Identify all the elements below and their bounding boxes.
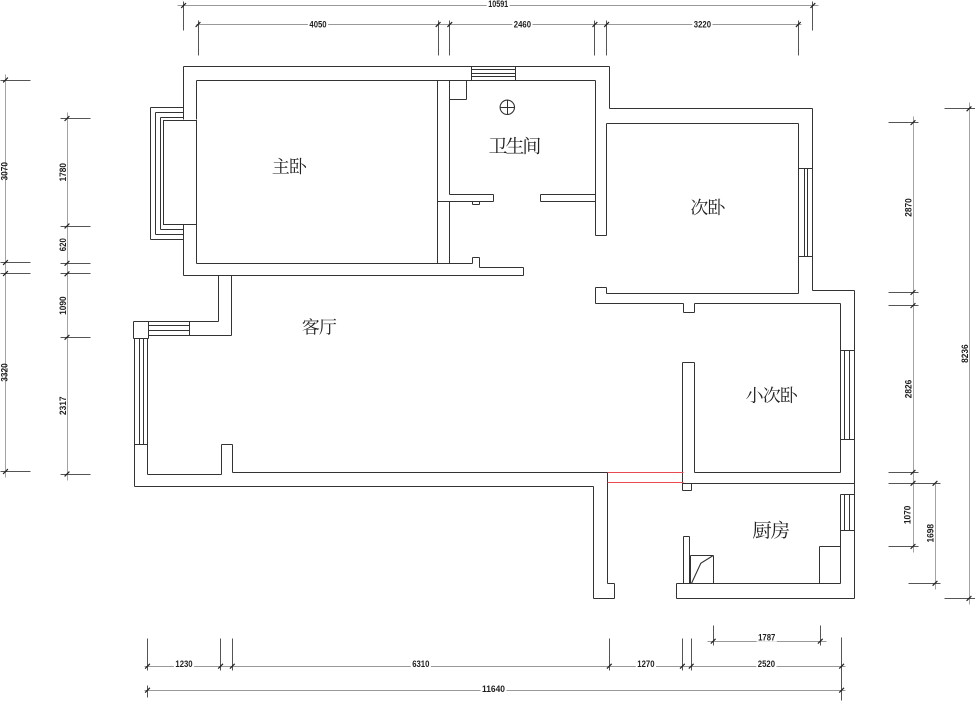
svg-text:3320: 3320 (0, 363, 9, 382)
svg-text:3220: 3220 (694, 20, 711, 30)
svg-text:4050: 4050 (309, 20, 326, 30)
svg-text:1230: 1230 (175, 659, 192, 669)
svg-text:2826: 2826 (904, 380, 914, 399)
svg-text:2870: 2870 (904, 198, 914, 217)
svg-text:8236: 8236 (960, 344, 970, 363)
svg-text:2520: 2520 (758, 659, 775, 669)
svg-text:1780: 1780 (58, 163, 68, 182)
svg-text:3070: 3070 (0, 162, 9, 181)
svg-text:6310: 6310 (412, 659, 429, 669)
svg-text:1090: 1090 (58, 296, 68, 315)
svg-text:10591: 10591 (488, 0, 508, 9)
svg-text:1070: 1070 (903, 506, 913, 525)
svg-text:1698: 1698 (926, 524, 936, 543)
svg-text:2317: 2317 (58, 396, 68, 415)
svg-text:2460: 2460 (514, 20, 531, 30)
svg-text:620: 620 (58, 238, 68, 251)
svg-text:1270: 1270 (637, 659, 654, 669)
svg-text:1787: 1787 (758, 633, 775, 643)
svg-text:11640: 11640 (482, 684, 505, 694)
